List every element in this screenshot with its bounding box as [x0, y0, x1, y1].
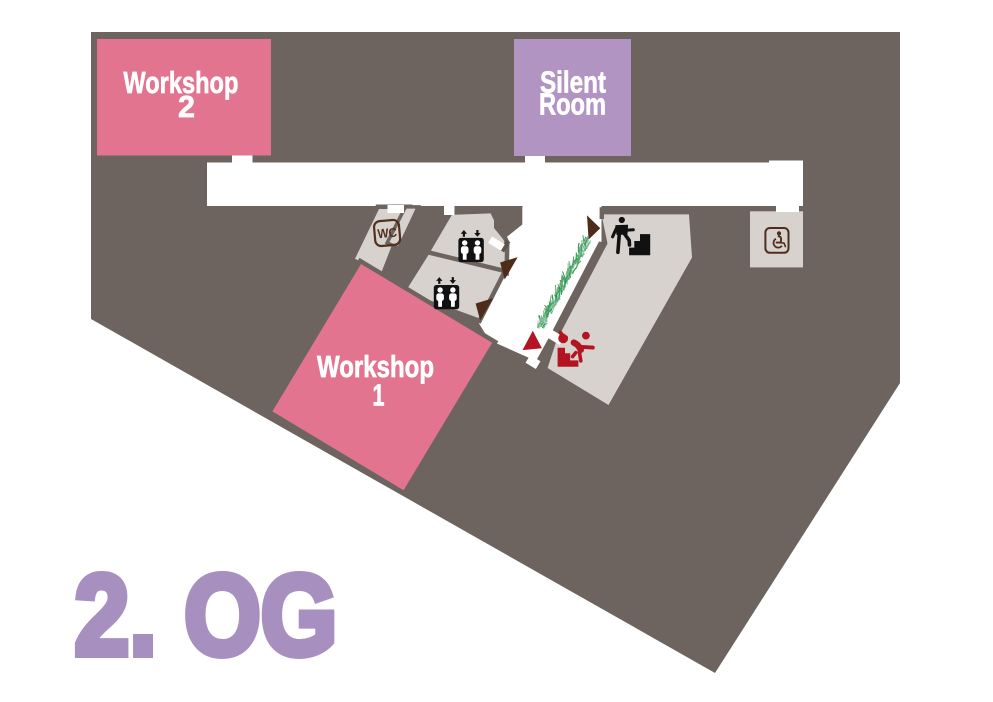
svg-text:Room: Room	[539, 87, 606, 122]
svg-text:1: 1	[373, 378, 385, 413]
svg-text:2: 2	[178, 89, 195, 124]
svg-text:2. OG: 2. OG	[75, 553, 338, 680]
svg-text:WC: WC	[377, 225, 398, 242]
